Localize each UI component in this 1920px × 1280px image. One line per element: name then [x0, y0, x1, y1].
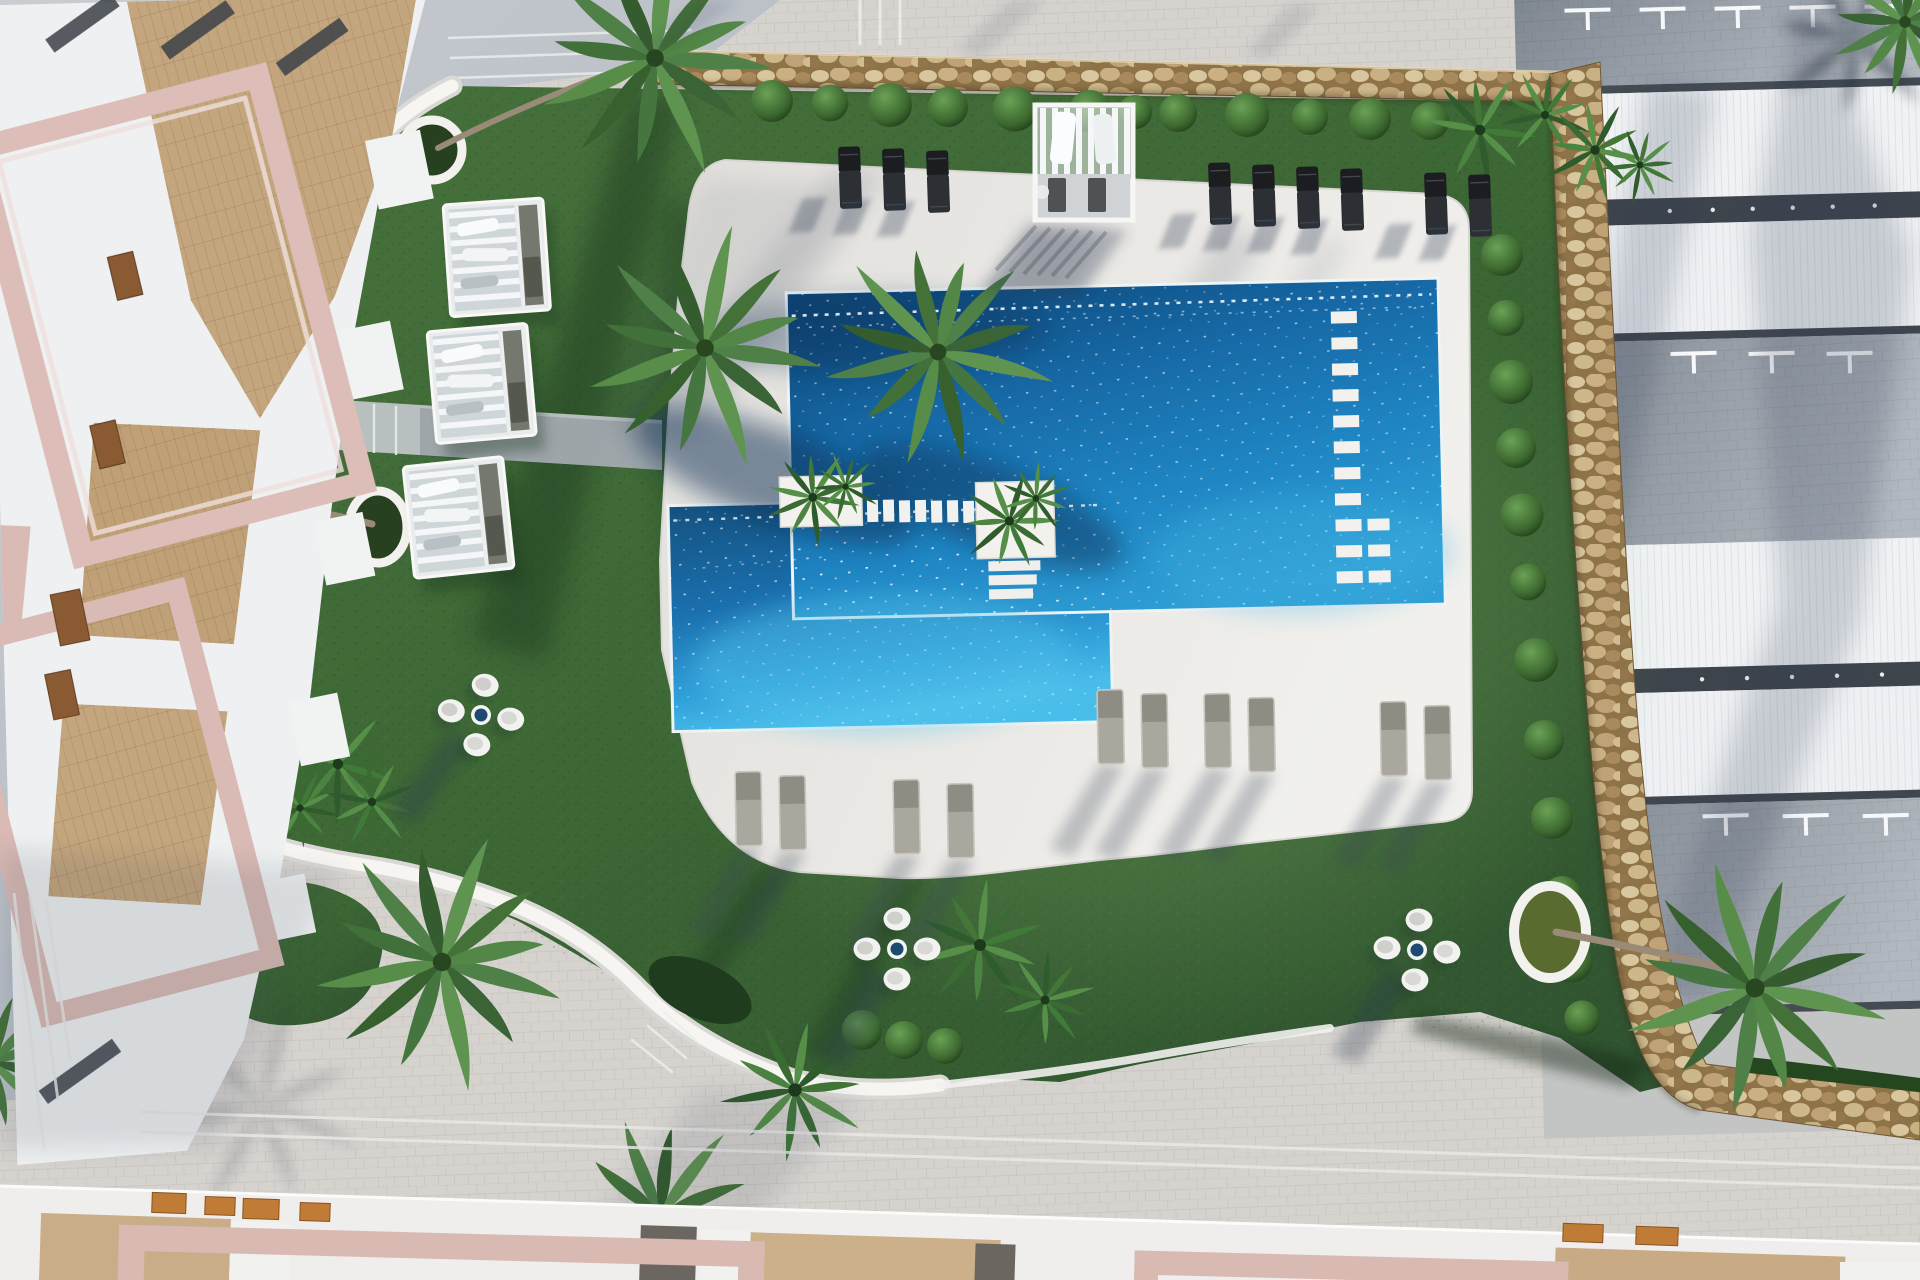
- pergola-lounger: [1088, 178, 1106, 212]
- cabana: [443, 197, 560, 332]
- aerial-render: Aerial 3D architectural rendering of a r…: [0, 0, 1920, 1280]
- pergola-lounger: [1048, 178, 1066, 212]
- cabana: [427, 323, 546, 460]
- cabana: [403, 456, 524, 595]
- ring-planter: [1514, 886, 1586, 978]
